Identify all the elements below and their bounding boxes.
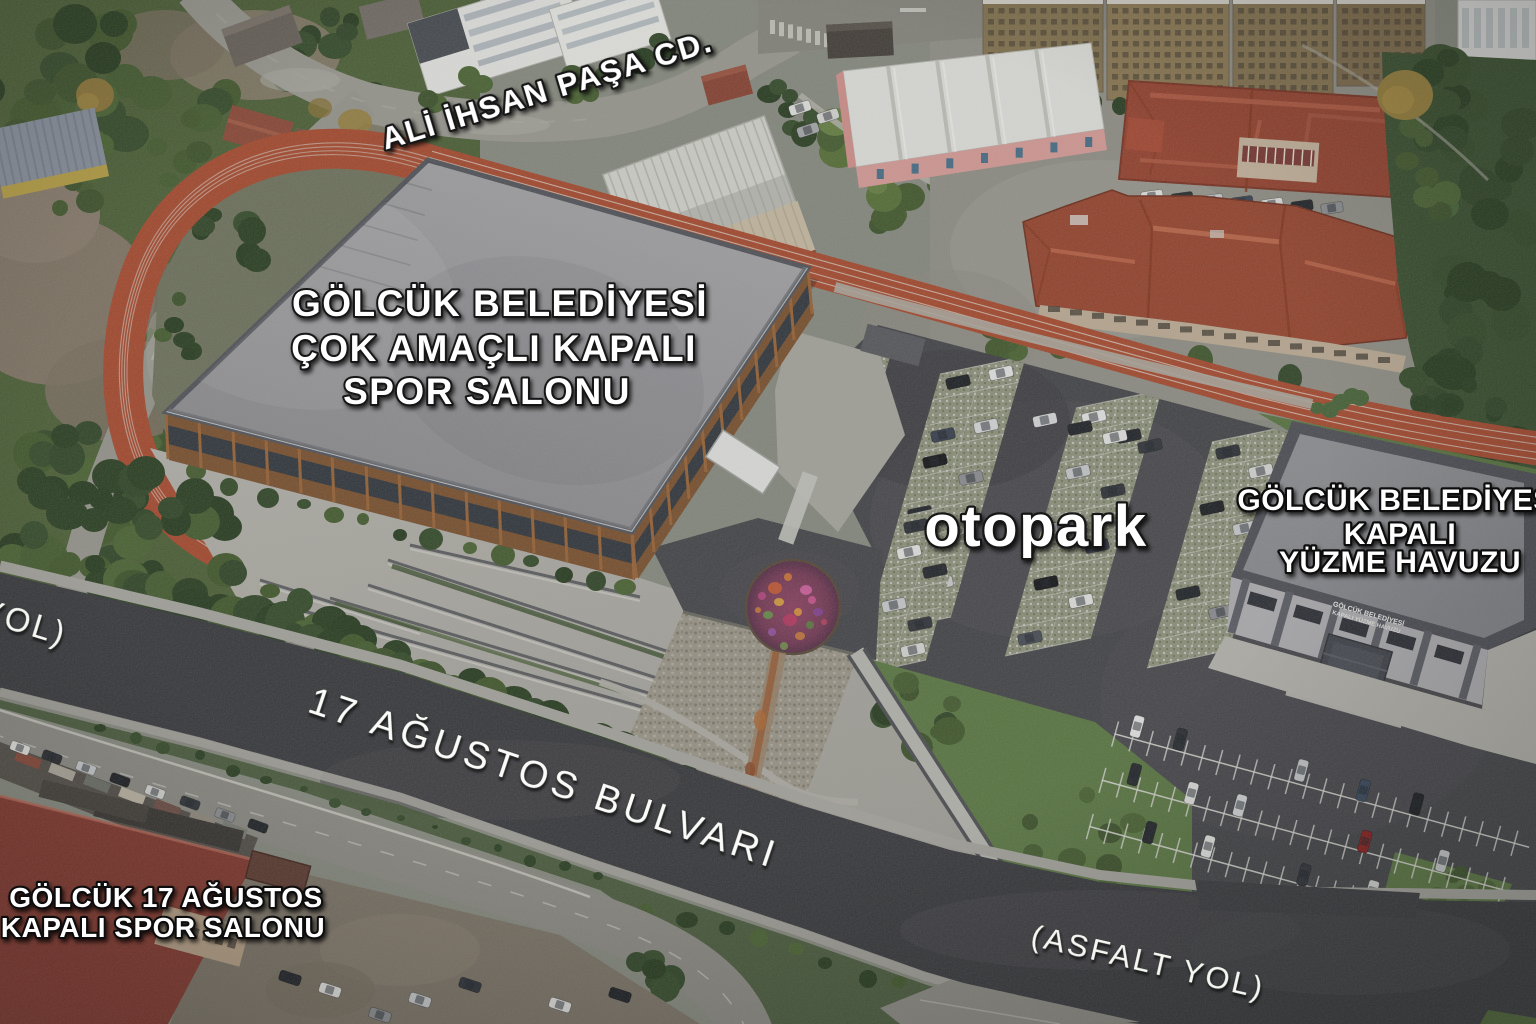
- svg-text:KAPALI SPOR SALONU: KAPALI SPOR SALONU: [1, 912, 325, 943]
- svg-text:ÇOK AMAÇLI KAPALI: ÇOK AMAÇLI KAPALI: [291, 328, 697, 369]
- svg-text:YÜZME HAVUZU: YÜZME HAVUZU: [1279, 546, 1521, 579]
- svg-text:SPOR SALONU: SPOR SALONU: [343, 371, 631, 412]
- svg-text:GÖLCÜK BELEDİYESİ: GÖLCÜK BELEDİYESİ: [292, 283, 708, 324]
- svg-text:GÖLCÜK BELEDİYESİ: GÖLCÜK BELEDİYESİ: [1237, 484, 1536, 517]
- svg-text:otopark: otopark: [924, 494, 1147, 559]
- svg-text:GÖLCÜK 17 AĞUSTOS: GÖLCÜK 17 AĞUSTOS: [9, 882, 322, 913]
